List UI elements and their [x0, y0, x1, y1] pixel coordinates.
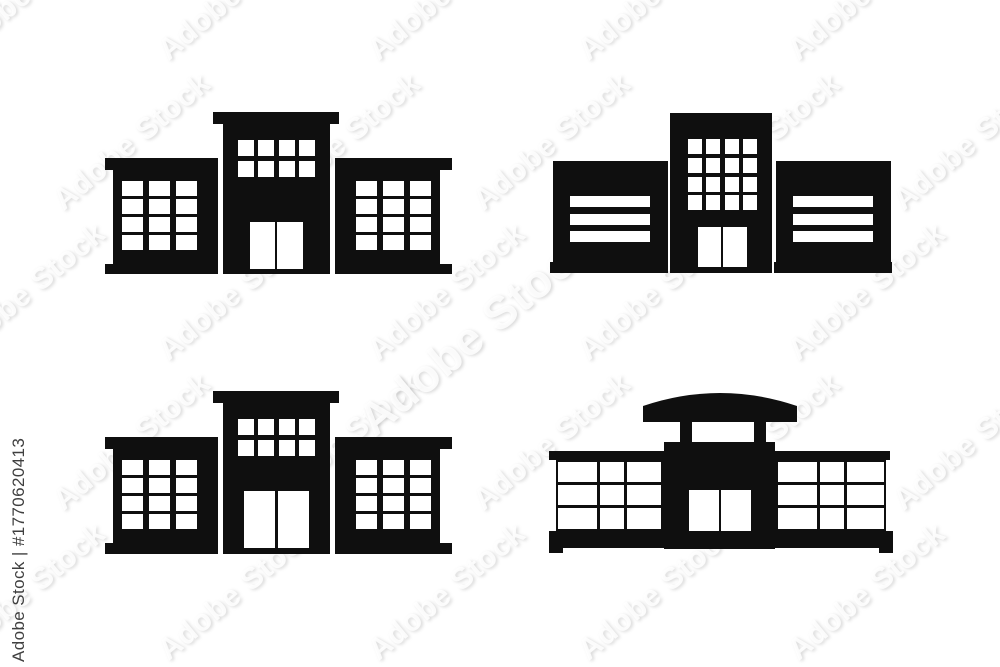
curved-canopy-roof	[643, 393, 797, 443]
left-glass-panes	[558, 462, 661, 529]
right-wing-stripes	[793, 196, 873, 242]
right-wing	[335, 158, 452, 274]
right-wing	[335, 437, 452, 554]
right-wing	[774, 161, 892, 273]
building-icon-office-grid-windows-bottom-left	[105, 391, 452, 554]
watermark-tile: Adobe Stock	[0, 0, 113, 67]
right-glass-wing	[775, 451, 890, 531]
stock-image-canvas: Adobe StockAdobe StockAdobe StockAdobe S…	[0, 0, 1000, 667]
watermark-credit-text: Adobe Stock | #1770620413	[9, 438, 29, 662]
building-icon-office-striped-wings-top-right	[550, 113, 892, 273]
left-wing-stripes	[570, 196, 650, 242]
left-wing	[105, 158, 218, 274]
watermark-layer: Adobe StockAdobe StockAdobe StockAdobe S…	[0, 0, 1000, 667]
watermark-tile: Adobe Stock	[992, 0, 1000, 67]
watermark-tile: Adobe Stock	[887, 67, 1000, 218]
right-glass-panes	[778, 462, 884, 529]
left-glass-wing	[549, 451, 664, 531]
center-tower	[670, 113, 772, 273]
watermark-tile: Adobe Stock	[782, 0, 953, 67]
left-wing	[550, 161, 668, 273]
center-tower	[213, 112, 339, 274]
watermark-tile: Adobe Stock	[992, 217, 1000, 368]
building-icon-office-grid-windows-top-left	[105, 112, 452, 274]
base-platform	[549, 531, 893, 553]
left-wing	[105, 437, 218, 554]
watermark-tile: Adobe Stock	[992, 517, 1000, 667]
center-tower	[213, 391, 339, 554]
watermark-tile: Adobe Stock	[152, 0, 323, 67]
watermark-tile: Adobe Stock	[572, 0, 743, 67]
building-icon-mall-curved-roof-bottom-right	[549, 392, 893, 553]
watermark-tile: Adobe Stock	[887, 367, 1000, 518]
watermark-tile: Adobe Stock	[0, 217, 113, 368]
watermark-tile: Adobe Stock	[362, 0, 533, 67]
